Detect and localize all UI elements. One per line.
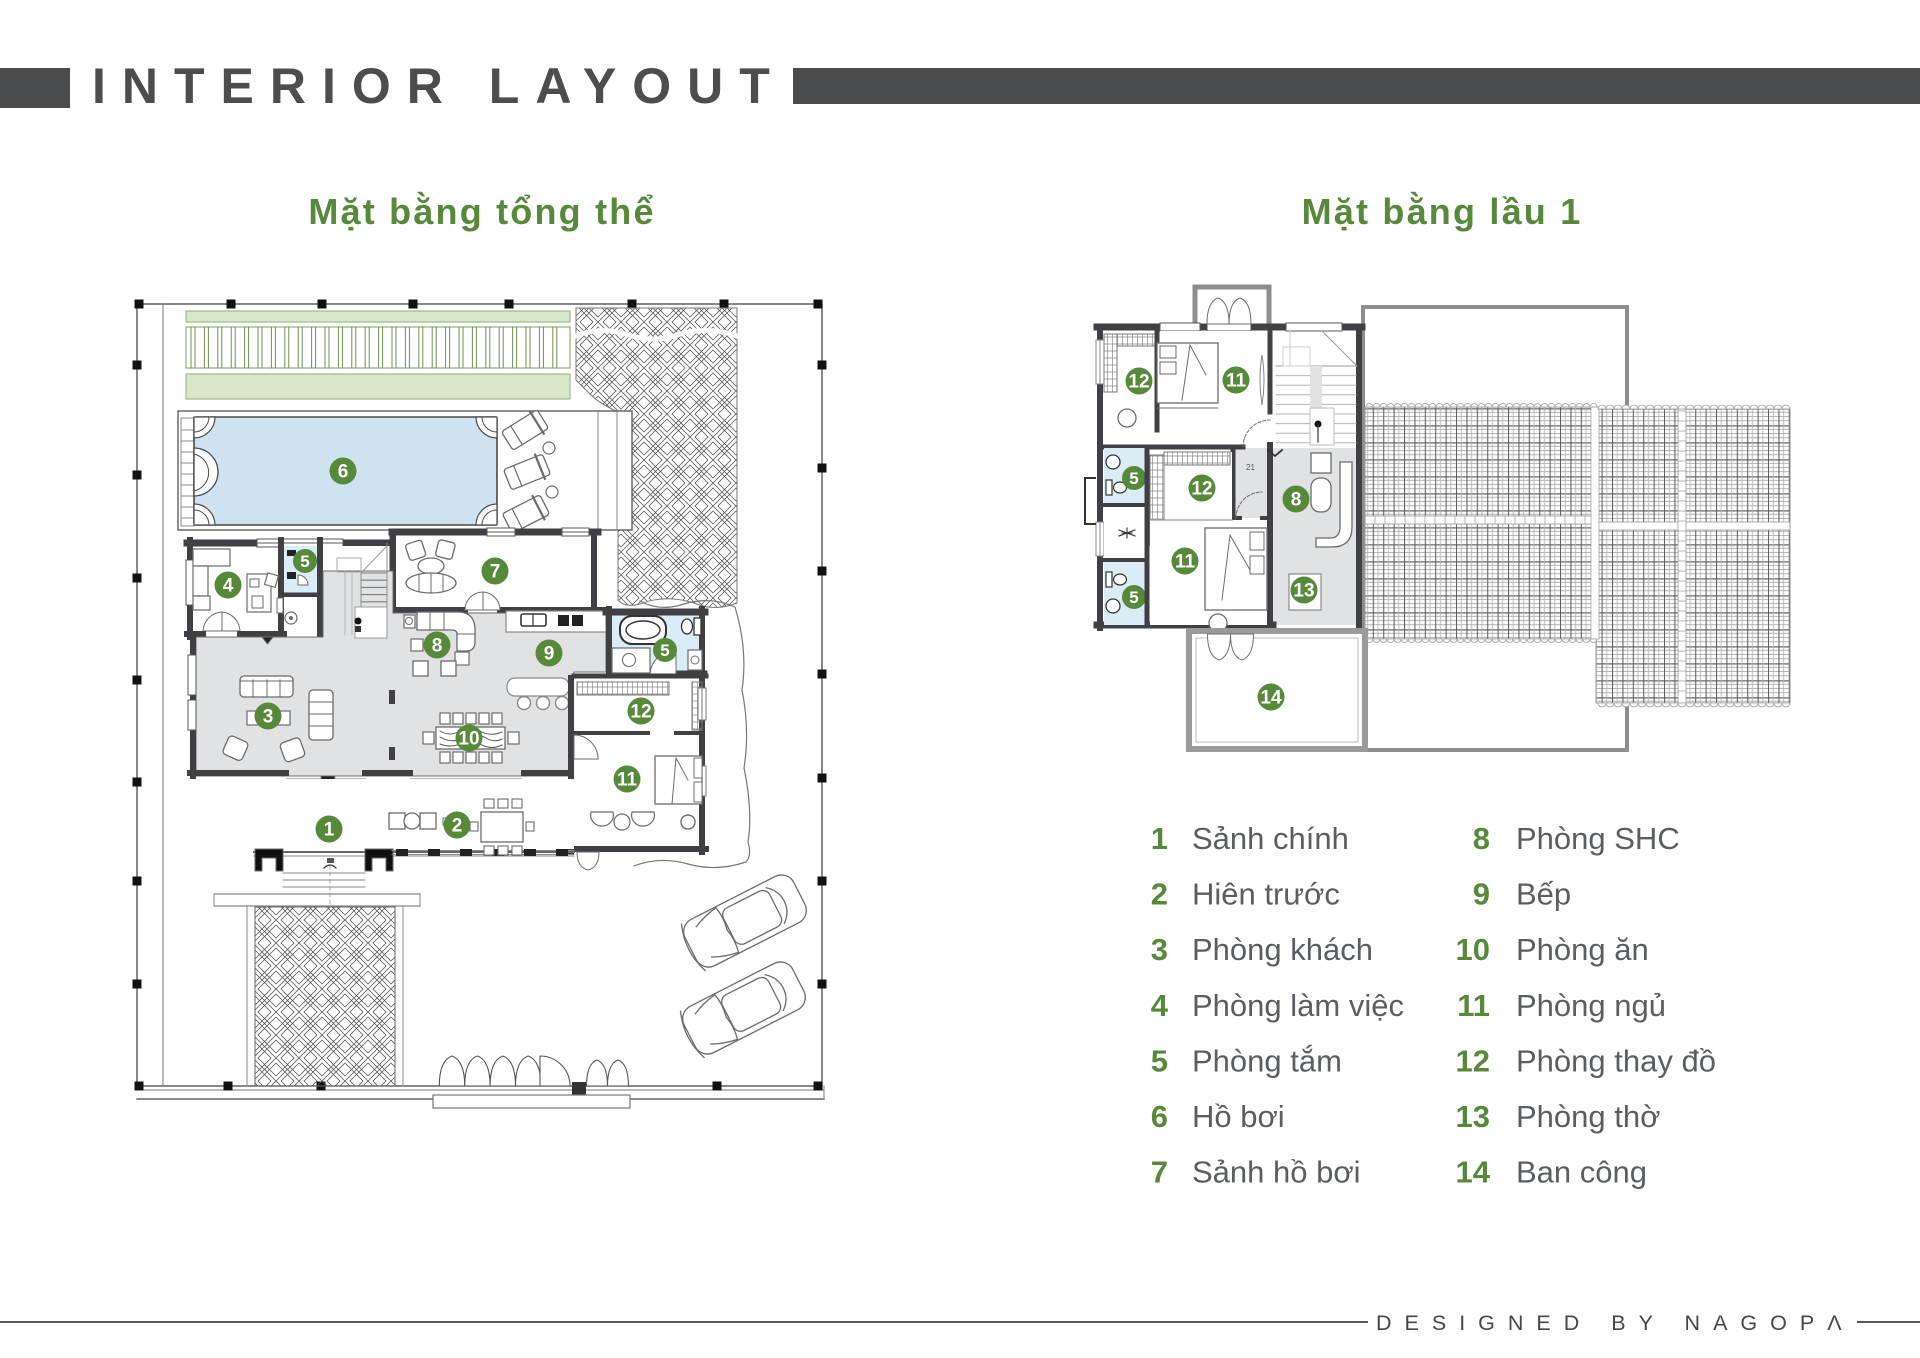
svg-text:7: 7 [1151, 1155, 1168, 1190]
svg-text:8: 8 [432, 636, 443, 657]
svg-text:11: 11 [617, 770, 638, 791]
svg-text:4: 4 [1151, 988, 1169, 1023]
svg-text:Hồ bơi: Hồ bơi [1192, 1099, 1285, 1134]
svg-text:10: 10 [458, 729, 479, 750]
svg-text:9: 9 [1473, 877, 1490, 912]
svg-text:Sảnh chính: Sảnh chính [1192, 821, 1349, 856]
svg-text:14: 14 [1456, 1155, 1491, 1190]
svg-text:5: 5 [1151, 1043, 1168, 1078]
svg-text:12: 12 [630, 702, 651, 723]
svg-text:11: 11 [1226, 371, 1247, 392]
svg-text:5: 5 [300, 552, 309, 571]
svg-text:3: 3 [263, 707, 274, 728]
svg-text:5: 5 [1129, 469, 1138, 488]
svg-text:13: 13 [1456, 1099, 1490, 1134]
svg-text:9: 9 [544, 644, 555, 665]
svg-text:Bếp: Bếp [1516, 877, 1571, 912]
svg-text:6: 6 [338, 462, 349, 483]
svg-text:11: 11 [1457, 988, 1490, 1023]
svg-text:6: 6 [1151, 1099, 1168, 1134]
svg-text:12: 12 [1128, 372, 1149, 393]
svg-text:Phòng ngủ: Phòng ngủ [1516, 988, 1666, 1023]
svg-text:2: 2 [452, 816, 463, 837]
svg-text:11: 11 [1175, 552, 1196, 573]
svg-text:Phòng thờ: Phòng thờ [1516, 1099, 1660, 1134]
svg-text:Ban công: Ban công [1516, 1155, 1647, 1190]
svg-text:10: 10 [1456, 932, 1490, 967]
svg-text:5: 5 [660, 641, 669, 660]
svg-text:Phòng khách: Phòng khách [1192, 932, 1373, 967]
svg-text:Phòng thay đồ: Phòng thay đồ [1516, 1043, 1716, 1078]
svg-text:1: 1 [1151, 821, 1168, 856]
svg-text:Mặt bằng lầu 1: Mặt bằng lầu 1 [1302, 190, 1583, 232]
svg-text:DESIGNED BY NAGOPΛ: DESIGNED BY NAGOPΛ [1376, 1311, 1855, 1335]
svg-text:7: 7 [490, 562, 501, 583]
svg-text:14: 14 [1260, 688, 1282, 709]
svg-text:Hiên trước: Hiên trước [1192, 877, 1340, 912]
svg-text:5: 5 [1129, 588, 1138, 607]
svg-text:Mặt bằng tổng thể: Mặt bằng tổng thể [308, 190, 655, 232]
svg-text:8: 8 [1473, 821, 1490, 856]
svg-text:INTERIOR LAYOUT: INTERIOR LAYOUT [92, 58, 786, 114]
svg-text:4: 4 [223, 576, 234, 597]
svg-text:2: 2 [1151, 877, 1168, 912]
svg-text:Phòng ăn: Phòng ăn [1516, 932, 1649, 967]
svg-text:8: 8 [1291, 490, 1302, 511]
svg-text:Phòng làm việc: Phòng làm việc [1192, 988, 1404, 1023]
svg-text:12: 12 [1456, 1043, 1490, 1078]
svg-text:1: 1 [324, 820, 335, 841]
svg-text:12: 12 [1191, 479, 1212, 500]
svg-text:3: 3 [1151, 932, 1168, 967]
svg-text:Sảnh hồ bơi: Sảnh hồ bơi [1192, 1155, 1361, 1190]
svg-text:Phòng tắm: Phòng tắm [1192, 1043, 1342, 1078]
svg-text:21: 21 [1246, 463, 1255, 472]
svg-text:13: 13 [1293, 581, 1314, 602]
svg-text:Phòng SHC: Phòng SHC [1516, 821, 1680, 856]
